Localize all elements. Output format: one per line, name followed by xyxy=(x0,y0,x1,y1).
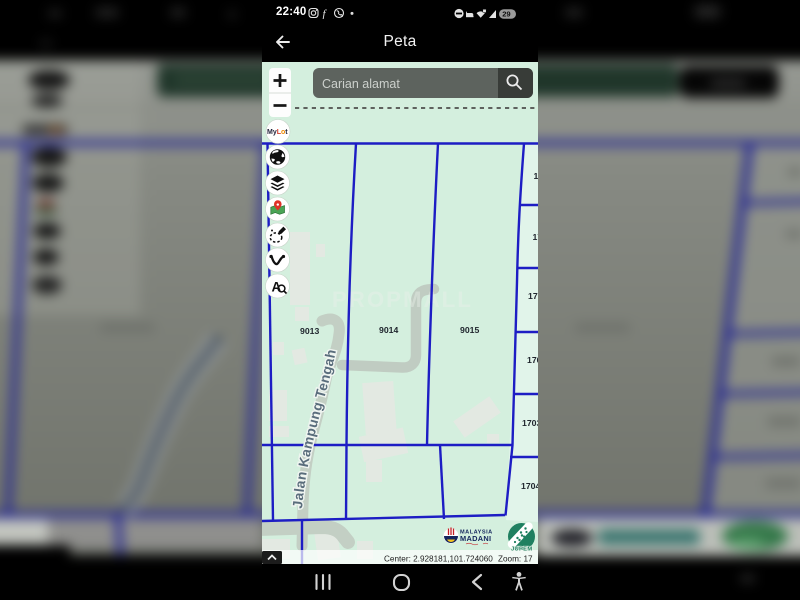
svg-text:MyLot: MyLot xyxy=(267,129,288,136)
svg-text:f: f xyxy=(323,8,328,19)
svg-text:Carian alamat: Carian alamat xyxy=(322,77,400,91)
svg-text:29: 29 xyxy=(502,9,510,18)
svg-text:MADANI: MADANI xyxy=(460,534,491,543)
svg-text:JUPEM: JUPEM xyxy=(511,547,532,553)
